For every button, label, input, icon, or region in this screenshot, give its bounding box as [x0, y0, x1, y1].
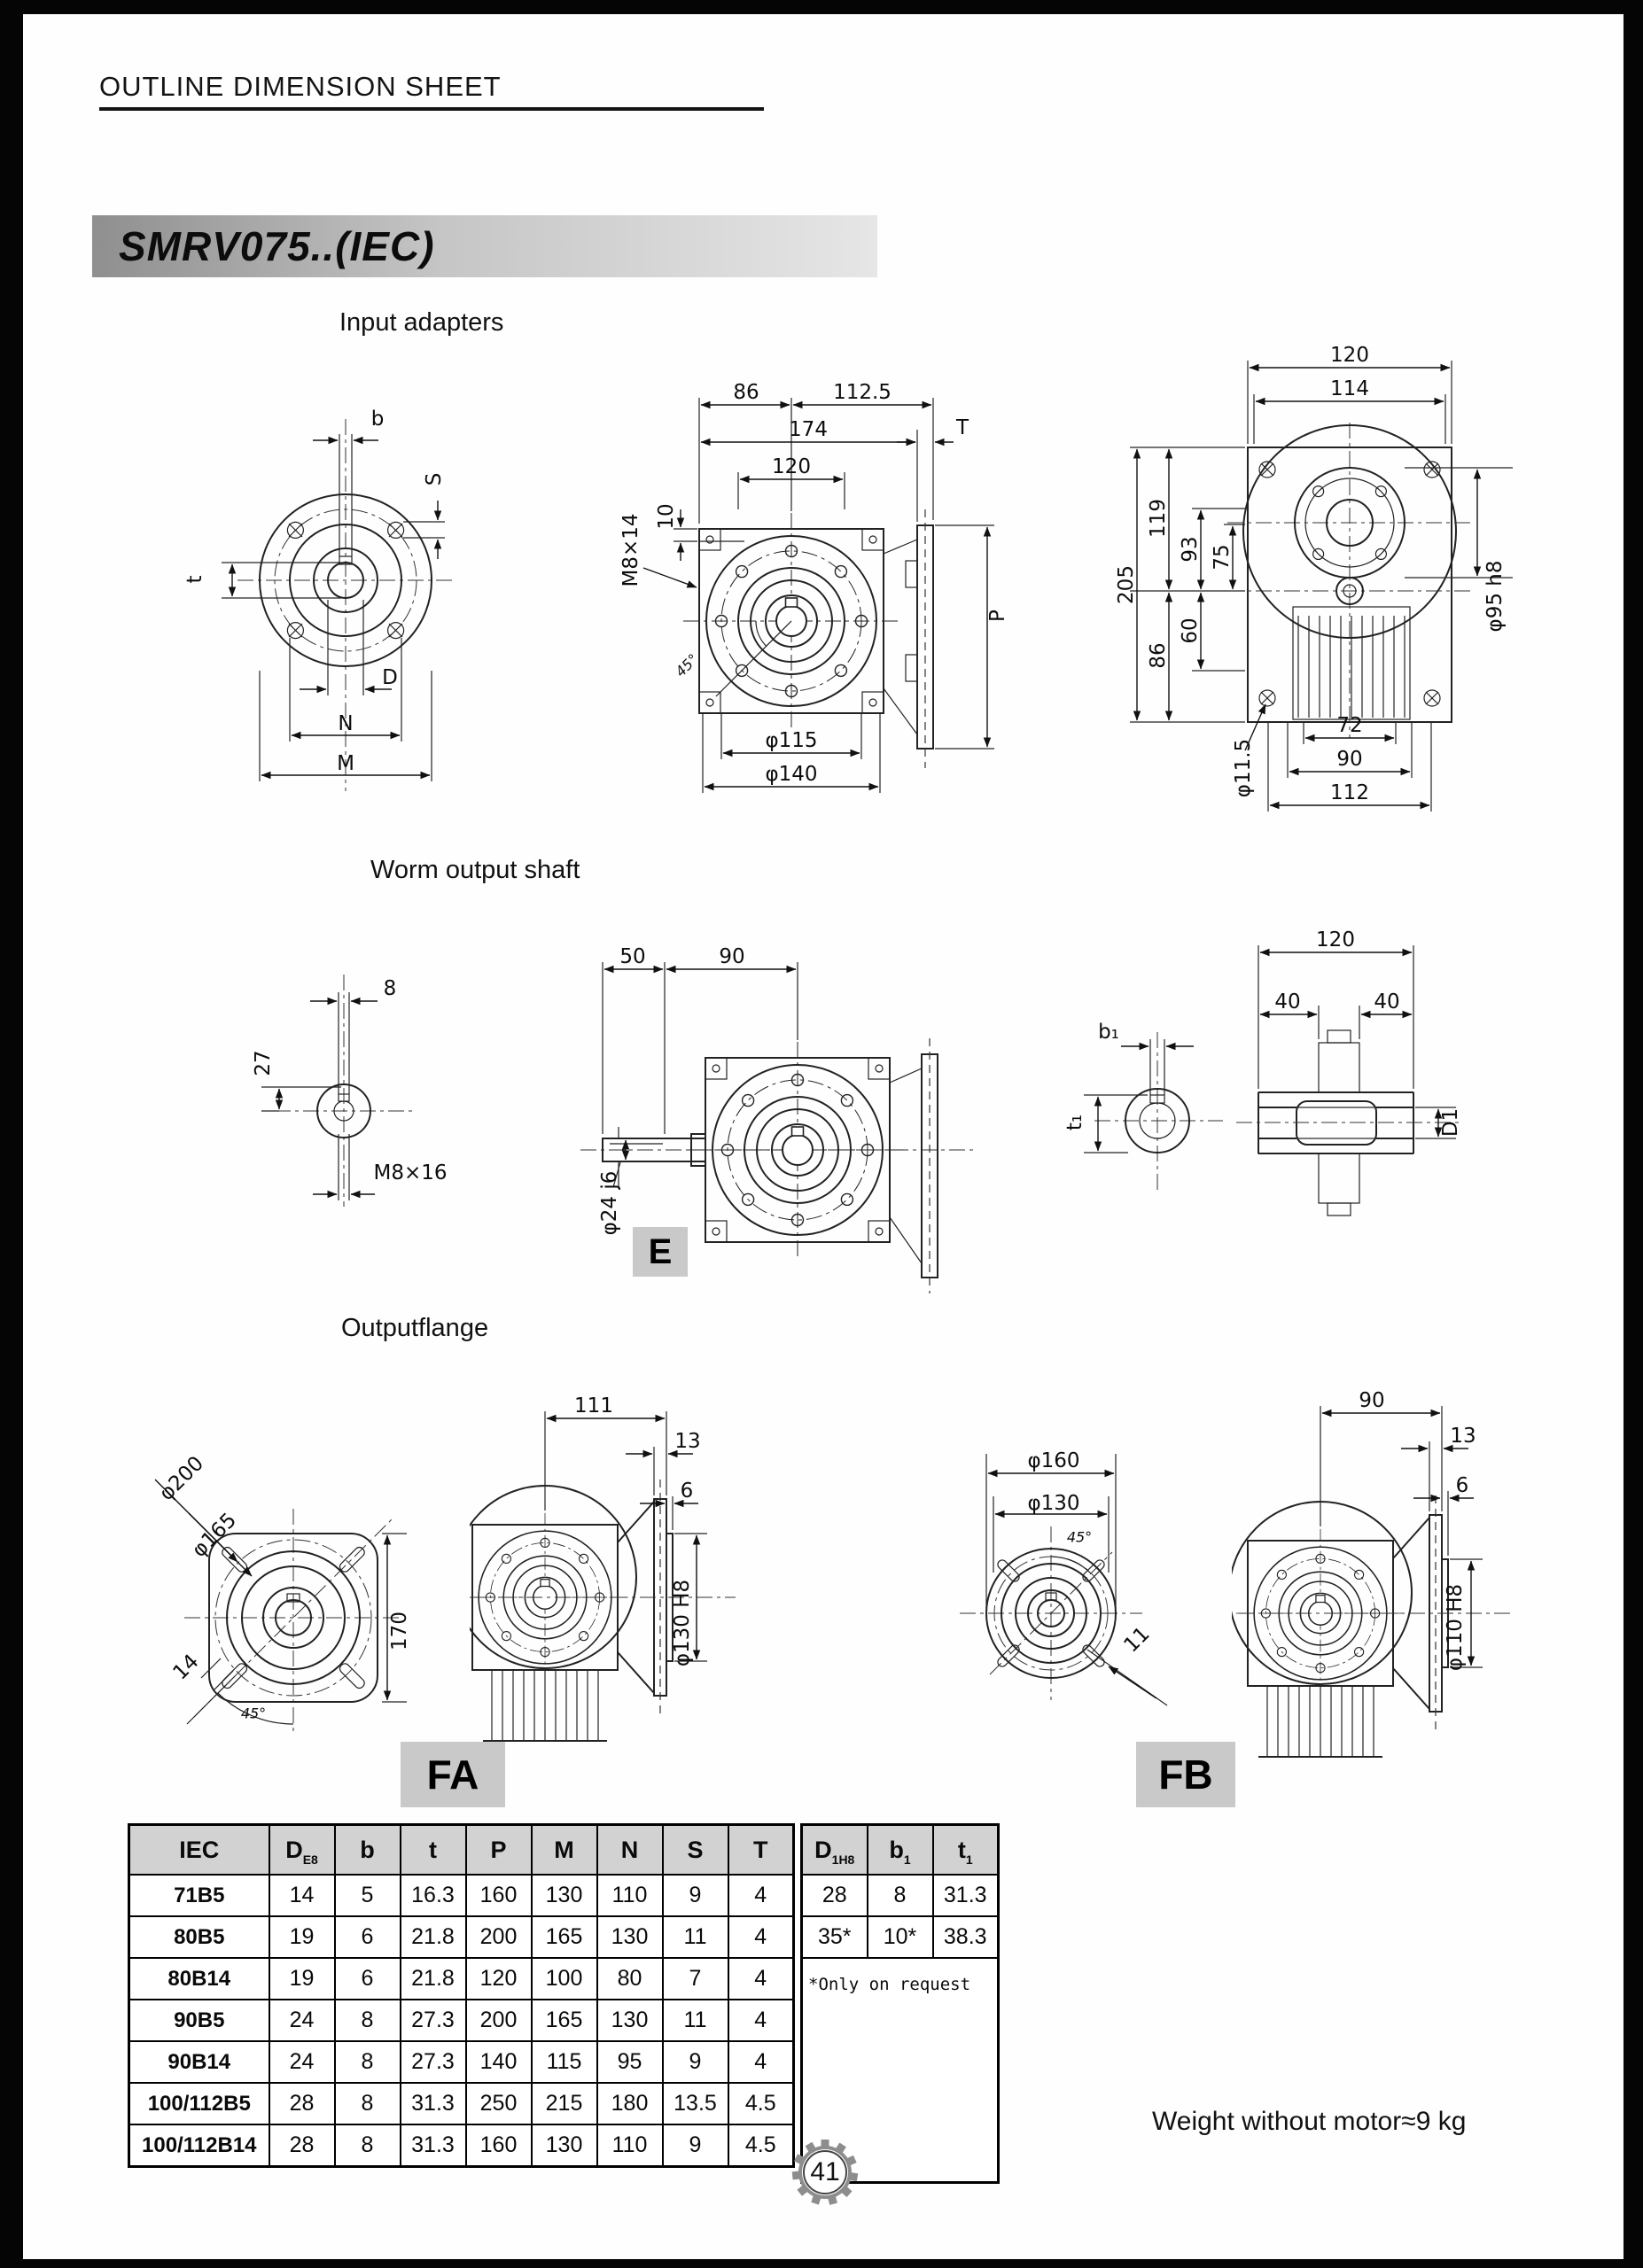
col-header: D1H8	[802, 1825, 868, 1876]
dim-label: 120	[1330, 344, 1369, 367]
table-cell: 130	[597, 2000, 663, 2041]
drawing-worm-shaft-end: 8 27 M8×16	[226, 939, 483, 1223]
col-header: N	[597, 1825, 663, 1876]
col-header: P	[466, 1825, 532, 1876]
dim-label: D	[382, 666, 398, 689]
col-header: t1	[933, 1825, 999, 1876]
model-title-bar: SMRV075..(IEC)	[92, 215, 877, 277]
table-cell: 4.5	[728, 2124, 794, 2167]
table-cell: 90B14	[129, 2041, 269, 2083]
table-cell: 100/112B5	[129, 2083, 269, 2124]
table-cell: 11	[663, 1916, 728, 1958]
table-cell: 180	[597, 2083, 663, 2124]
dim-label: M8×16	[373, 1161, 447, 1184]
dim-label: 8	[384, 977, 397, 1000]
table-cell: 130	[532, 1875, 597, 1916]
dim-label: 6	[681, 1480, 694, 1503]
dim-label: 170	[388, 1612, 411, 1651]
dim-label: 90	[1336, 748, 1362, 771]
table-cell: 35*	[802, 1916, 868, 1958]
table-cell: 160	[466, 1875, 532, 1916]
table-cell: 4	[728, 1958, 794, 2000]
table-row: 28 8 31.3	[802, 1875, 999, 1916]
dim-label: 45°	[1067, 1529, 1092, 1546]
dim-label: φ130	[1027, 1492, 1079, 1515]
table-cell: 71B5	[129, 1875, 269, 1916]
table-cell: 215	[532, 2083, 597, 2124]
dim-label: t	[183, 575, 206, 583]
dim-label: S	[423, 473, 446, 486]
table-cell: 28	[269, 2083, 335, 2124]
table-cell: 200	[466, 1916, 532, 1958]
table-cell: 80	[597, 1958, 663, 2000]
dim-label: φ115	[765, 729, 817, 752]
dimension-tables: IEC DE8 b t P M N S T 71B5 14 5 16.3 160…	[128, 1823, 1000, 2184]
weight-note: Weight without motor≈9 kg	[1152, 2107, 1466, 2137]
dim-label: 90	[1359, 1389, 1384, 1412]
dim-label: N	[338, 712, 353, 735]
col-header: IEC	[129, 1825, 269, 1876]
table-cell: 160	[466, 2124, 532, 2167]
fb-side-linework	[1232, 1369, 1622, 1803]
dim-label: 72	[1336, 714, 1362, 737]
worm-shaft-side-linework	[567, 930, 993, 1302]
hollow-shaft-table: D1H8 b1 t1 28 8 31.3 35* 10* 38.3 *Only …	[800, 1823, 1000, 2184]
dim-label: φ130 H8	[671, 1580, 694, 1666]
main-dimension-table: IEC DE8 b t P M N S T 71B5 14 5 16.3 160…	[128, 1823, 795, 2168]
page-number-gear: 41	[791, 2139, 859, 2206]
col-header: b	[335, 1825, 401, 1876]
col-header: DE8	[269, 1825, 335, 1876]
dim-label: 40	[1374, 990, 1399, 1014]
table-row: 80B14 19 6 21.8 120 100 80 7 4	[129, 1958, 794, 2000]
table-cell: 4	[728, 2041, 794, 2083]
table-cell: 31.3	[933, 1875, 999, 1916]
dim-label: φ160	[1027, 1449, 1079, 1472]
table-cell: 8	[868, 1875, 933, 1916]
page-header: OUTLINE DIMENSION SHEET	[99, 71, 502, 103]
table-row: 100/112B14 28 8 31.3 160 130 110 9 4.5	[129, 2124, 794, 2167]
table-cell: 110	[597, 2124, 663, 2167]
table-cell: 165	[532, 2000, 597, 2041]
table-cell: 21.8	[401, 1916, 466, 1958]
table-cell: 110	[597, 1875, 663, 1916]
drawing-output-flange-fb-side: 90 13 6 φ110 H8	[1232, 1369, 1622, 1803]
dim-label: φ11.5	[1232, 739, 1255, 797]
table-cell: 28	[269, 2124, 335, 2167]
drawing-output-flange-fa-side: 111 13 6 φ130 H8	[470, 1369, 864, 1803]
table-cell: 80B5	[129, 1916, 269, 1958]
table-header-row: IEC DE8 b t P M N S T	[129, 1825, 794, 1876]
dim-label: 120	[772, 455, 811, 478]
drawing-input-adapter-side: 86 112.5 174 T 120 10 M8×14 P 45° φ115 φ…	[611, 377, 1001, 802]
badge-e: E	[633, 1227, 688, 1277]
table-cell: 90B5	[129, 2000, 269, 2041]
table-cell: 27.3	[401, 2000, 466, 2041]
table-cell: 31.3	[401, 2083, 466, 2124]
section-label-input-adapters: Input adapters	[339, 308, 503, 338]
dim-label: b₁	[1098, 1021, 1119, 1044]
dim-label: 10	[655, 503, 678, 529]
table-cell: 8	[335, 2083, 401, 2124]
table-cell: 100/112B14	[129, 2124, 269, 2167]
table-cell: 4	[728, 1875, 794, 1916]
table-cell: 38.3	[933, 1916, 999, 1958]
dim-label: 40	[1274, 990, 1300, 1014]
dim-label: 93	[1179, 536, 1202, 562]
table-cell: 120	[466, 1958, 532, 2000]
table-cell: 7	[663, 1958, 728, 2000]
dim-label: φ140	[765, 763, 817, 786]
table-cell: 16.3	[401, 1875, 466, 1916]
fb-front-linework	[935, 1413, 1227, 1714]
table-row: 35* 10* 38.3	[802, 1916, 999, 1958]
table-row: 80B5 19 6 21.8 200 165 130 11 4	[129, 1916, 794, 1958]
table-cell: 9	[663, 2041, 728, 2083]
table-cell: 6	[335, 1916, 401, 1958]
dim-label: 27	[252, 1050, 275, 1076]
page-canvas: OUTLINE DIMENSION SHEET SMRV075..(IEC) I…	[0, 0, 1643, 2268]
fa-front-linework	[102, 1404, 483, 1785]
table-cell: 4	[728, 1916, 794, 1958]
table-cell: 100	[532, 1958, 597, 2000]
table-cell: 95	[597, 2041, 663, 2083]
badge-fa: FA	[401, 1742, 505, 1807]
col-header: M	[532, 1825, 597, 1876]
table-cell: 28	[802, 1875, 868, 1916]
drawing-output-flange-fb-front: φ160 φ130 45° 11	[935, 1413, 1227, 1714]
dim-label: P	[986, 610, 1009, 622]
dim-label: φ95 h8	[1483, 561, 1507, 633]
dim-label: T	[956, 416, 969, 439]
table-cell: 5	[335, 1875, 401, 1916]
fa-side-linework	[470, 1369, 864, 1803]
dim-label: 50	[619, 945, 645, 968]
dim-label: φ24 j6	[598, 1171, 621, 1236]
col-header: T	[728, 1825, 794, 1876]
table-cell: 9	[663, 1875, 728, 1916]
table-cell: 250	[466, 2083, 532, 2124]
table-cell: 165	[532, 1916, 597, 1958]
dim-label: 13	[674, 1430, 700, 1453]
section-label-worm-output-shaft: Worm output shaft	[370, 856, 580, 885]
table-header-row: D1H8 b1 t1	[802, 1825, 999, 1876]
drawing-output-flange-fa-front: φ200 φ165 170 14 45°	[102, 1404, 483, 1785]
dim-label: φ110 H8	[1444, 1584, 1467, 1671]
table-cell: 11	[663, 2000, 728, 2041]
page-number: 41	[810, 2157, 839, 2187]
table-row: 90B14 24 8 27.3 140 115 95 9 4	[129, 2041, 794, 2083]
table-row: 90B5 24 8 27.3 200 165 130 11 4	[129, 2000, 794, 2041]
col-header: S	[663, 1825, 728, 1876]
table-cell: 200	[466, 2000, 532, 2041]
input-adapter-back-linework	[1112, 341, 1533, 819]
dim-label: 45°	[241, 1705, 266, 1722]
table-cell: 8	[335, 2000, 401, 2041]
dim-label: 112.5	[833, 381, 892, 404]
table-cell: 13.5	[663, 2083, 728, 2124]
table-cell: 24	[269, 2000, 335, 2041]
drawing-input-adapter-back: 120 114 205 119 93 75 86 60 φ95 h8 φ11.5…	[1112, 341, 1533, 819]
col-header: b1	[868, 1825, 933, 1876]
table-cell: 130	[597, 1916, 663, 1958]
input-flange-front-linework	[133, 394, 487, 811]
table-cell: 80B14	[129, 1958, 269, 2000]
dim-label: 86	[733, 381, 759, 404]
dim-label: 174	[789, 418, 828, 441]
dim-label: 86	[1147, 642, 1170, 668]
table-cell: 8	[335, 2041, 401, 2083]
dim-label: 90	[719, 945, 744, 968]
table-cell: 4	[728, 2000, 794, 2041]
dim-label: 6	[1456, 1474, 1469, 1497]
dim-label: 112	[1330, 781, 1369, 804]
header-underline	[99, 107, 764, 111]
table-cell: 4.5	[728, 2083, 794, 2124]
table-cell: 27.3	[401, 2041, 466, 2083]
dim-label: 205	[1115, 565, 1138, 604]
drawing-worm-bushing: b₁ t₁ 120 40 40 D1	[1059, 926, 1484, 1218]
table-cell: 6	[335, 1958, 401, 2000]
dim-label: 120	[1316, 928, 1355, 951]
col-header: t	[401, 1825, 466, 1876]
only-on-request-note: *Only on request	[808, 1975, 970, 1994]
worm-bushing-linework	[1059, 926, 1484, 1218]
table-cell: 21.8	[401, 1958, 466, 2000]
table-cell: 31.3	[401, 2124, 466, 2167]
table-cell: 9	[663, 2124, 728, 2167]
model-title: SMRV075..(IEC)	[92, 222, 435, 270]
table-cell: 14	[269, 1875, 335, 1916]
table-cell: 19	[269, 1916, 335, 1958]
table-row: 100/112B5 28 8 31.3 250 215 180 13.5 4.5	[129, 2083, 794, 2124]
dim-label: b	[371, 408, 385, 431]
dim-label: 119	[1147, 499, 1170, 538]
dim-label: 111	[574, 1394, 613, 1417]
dim-label: D1	[1439, 1108, 1462, 1137]
table-cell: 115	[532, 2041, 597, 2083]
table-cell: 8	[335, 2124, 401, 2167]
dim-label: M8×14	[619, 513, 642, 586]
table-cell: 10*	[868, 1916, 933, 1958]
table-row: 71B5 14 5 16.3 160 130 110 9 4	[129, 1875, 794, 1916]
dim-label: t₁	[1063, 1115, 1086, 1130]
table-cell: 140	[466, 2041, 532, 2083]
dim-label: 114	[1330, 377, 1369, 400]
table-cell: 24	[269, 2041, 335, 2083]
dim-label: 13	[1450, 1425, 1476, 1448]
table-cell: 19	[269, 1958, 335, 2000]
dim-label: 75	[1211, 544, 1234, 570]
table-cell: 130	[532, 2124, 597, 2167]
dim-label: 60	[1179, 617, 1202, 643]
badge-fb: FB	[1136, 1742, 1235, 1807]
dim-label: M	[337, 752, 354, 775]
section-label-output-flange: Outputflange	[341, 1314, 488, 1343]
drawing-input-flange-front: b S t D N M	[133, 394, 487, 811]
drawing-worm-shaft-side: 50 90 φ24 j6	[567, 930, 993, 1302]
